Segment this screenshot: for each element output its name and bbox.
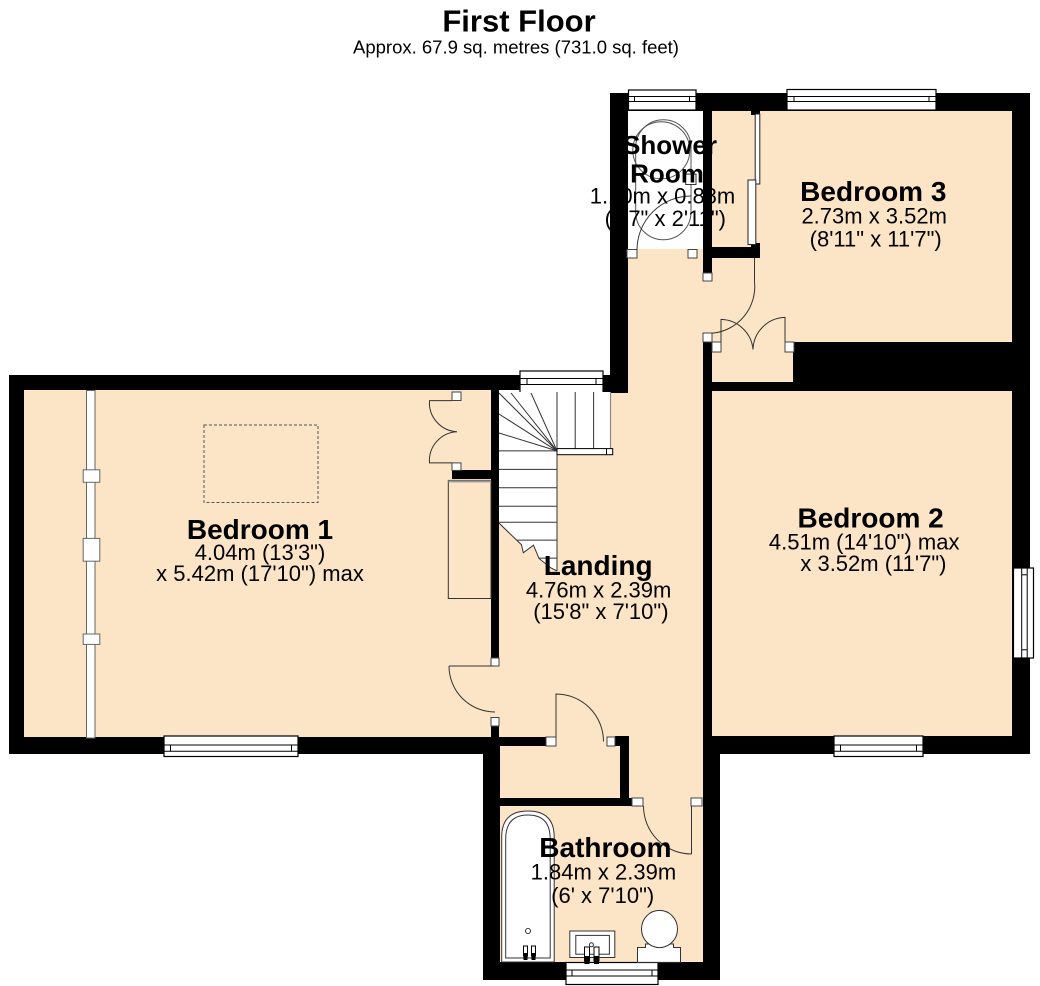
svg-text:2.73m x 3.52m: 2.73m x 3.52m: [801, 204, 947, 229]
svg-text:x 3.52m (11'7"): x 3.52m (11'7"): [800, 551, 946, 576]
svg-text:Approx. 67.9 sq. metres (731.0: Approx. 67.9 sq. metres (731.0 sq. feet): [353, 37, 679, 58]
svg-text:x 5.42m (17'10") max: x 5.42m (17'10") max: [156, 561, 364, 586]
svg-text:(8'11" x 11'7"): (8'11" x 11'7"): [810, 227, 942, 252]
svg-text:(6' x 7'10"): (6' x 7'10"): [551, 883, 654, 908]
svg-text:(15'8" x 7'10"): (15'8" x 7'10"): [533, 599, 668, 624]
svg-text:(3'7" x 2'11"): (3'7" x 2'11"): [605, 206, 726, 231]
svg-text:Bedroom 3: Bedroom 3: [800, 176, 946, 207]
svg-text:1.84m x 2.39m: 1.84m x 2.39m: [531, 859, 677, 884]
svg-text:Shower: Shower: [623, 130, 717, 160]
svg-text:1.10m x 0.88m: 1.10m x 0.88m: [590, 184, 736, 209]
svg-text:First Floor: First Floor: [442, 3, 595, 38]
